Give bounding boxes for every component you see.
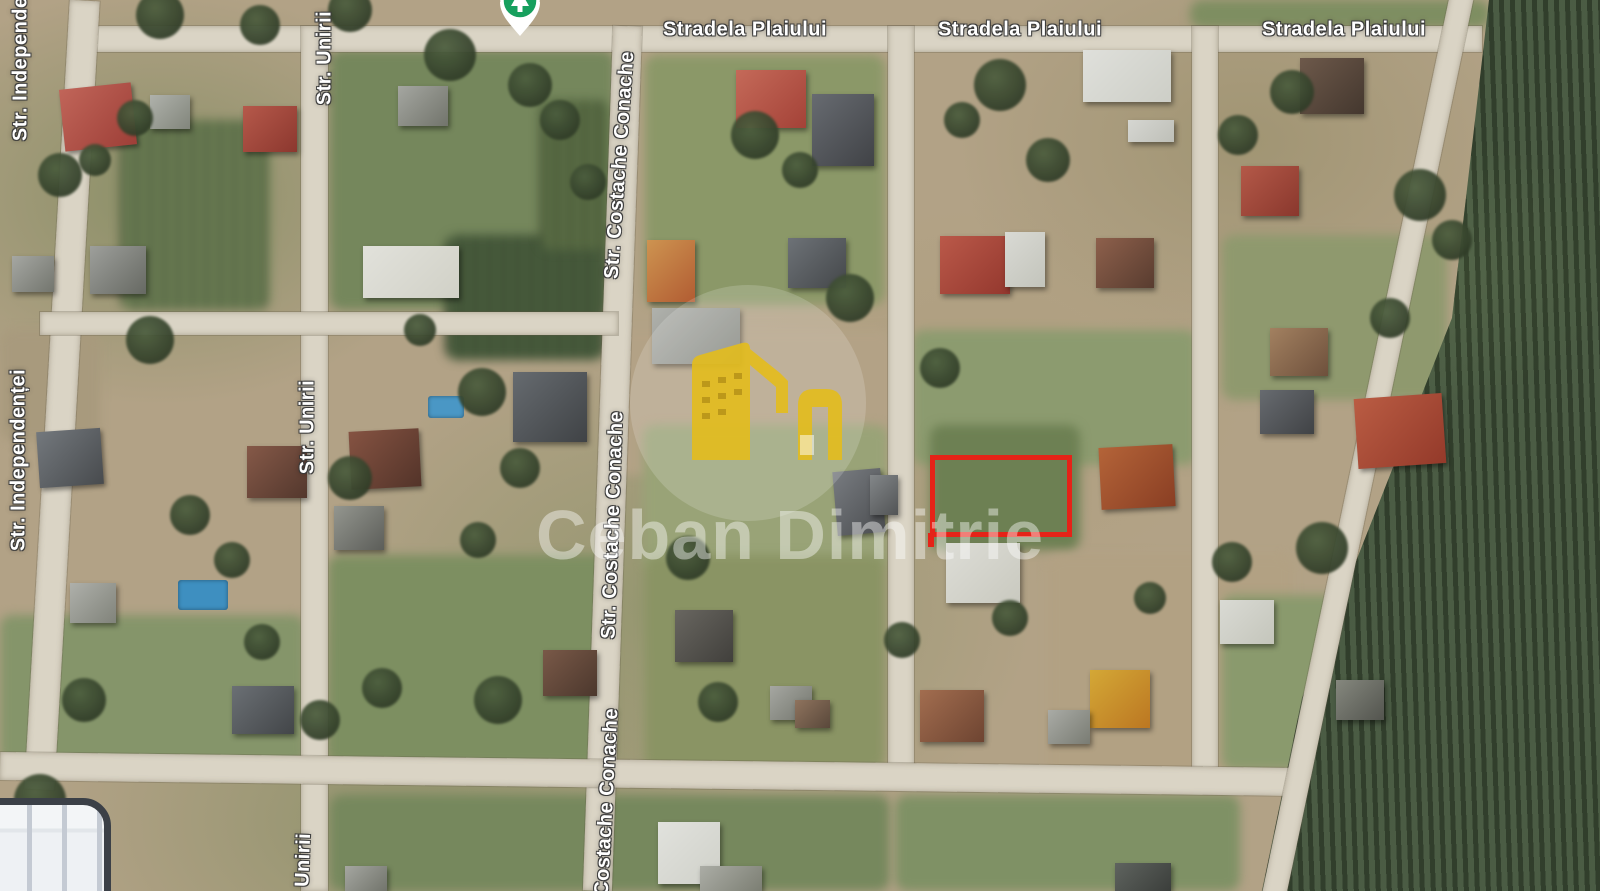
street-label: Str. Unirii [290,832,316,891]
park-poi-pin[interactable] [494,0,546,45]
watermark-buildings-logo-icon [630,285,866,521]
street-label: Stradela Plaiului [1262,19,1426,42]
street-label: Str. Independenței [10,0,33,141]
building-3d-structure [0,798,111,891]
map-viewport[interactable]: Stradela PlaiuluiStradela PlaiuluiStrade… [0,0,1600,891]
watermark-text: Ceban Dimitrie [536,495,1044,575]
street-label: Str. Independenței [8,369,31,551]
street-label: Stradela Plaiului [663,19,827,42]
street-label: Str. Costache Conache [589,707,624,891]
street-label: Str. Costache Conache [601,50,640,279]
street-label: Str. Unirii [314,11,337,105]
street-label: Stradela Plaiului [938,19,1102,42]
street-label: Str. Unirii [297,380,320,474]
